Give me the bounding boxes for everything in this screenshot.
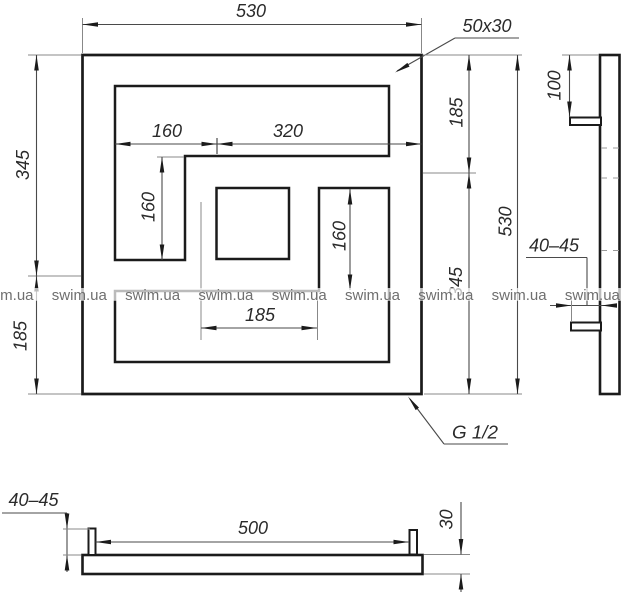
svg-text:100: 100 [545,70,565,100]
svg-text:swim.ua: swim.ua [198,287,254,304]
svg-text:530: 530 [236,1,266,21]
svg-text:swim.ua: swim.ua [125,287,181,304]
svg-text:345: 345 [13,149,33,180]
svg-text:30: 30 [437,509,457,529]
svg-text:swim.ua: swim.ua [272,287,328,304]
svg-text:40–45: 40–45 [529,236,580,256]
svg-text:50x30: 50x30 [462,16,511,36]
svg-text:185: 185 [11,320,31,351]
svg-text:swim.ua: swim.ua [0,287,34,304]
svg-text:160: 160 [139,192,159,222]
svg-text:160: 160 [330,221,350,251]
svg-text:swim.ua: swim.ua [418,287,474,304]
svg-text:swim.ua: swim.ua [345,287,401,304]
svg-text:530: 530 [496,206,516,236]
svg-text:40–45: 40–45 [8,490,59,510]
svg-text:185: 185 [245,305,276,325]
svg-text:320: 320 [273,121,303,141]
svg-text:500: 500 [238,518,268,538]
svg-text:185: 185 [447,97,467,128]
svg-text:swim.ua: swim.ua [492,287,548,304]
svg-text:swim.ua: swim.ua [565,287,621,304]
svg-text:160: 160 [152,121,182,141]
svg-text:swim.ua: swim.ua [52,287,108,304]
svg-text:G 1/2: G 1/2 [452,422,498,443]
